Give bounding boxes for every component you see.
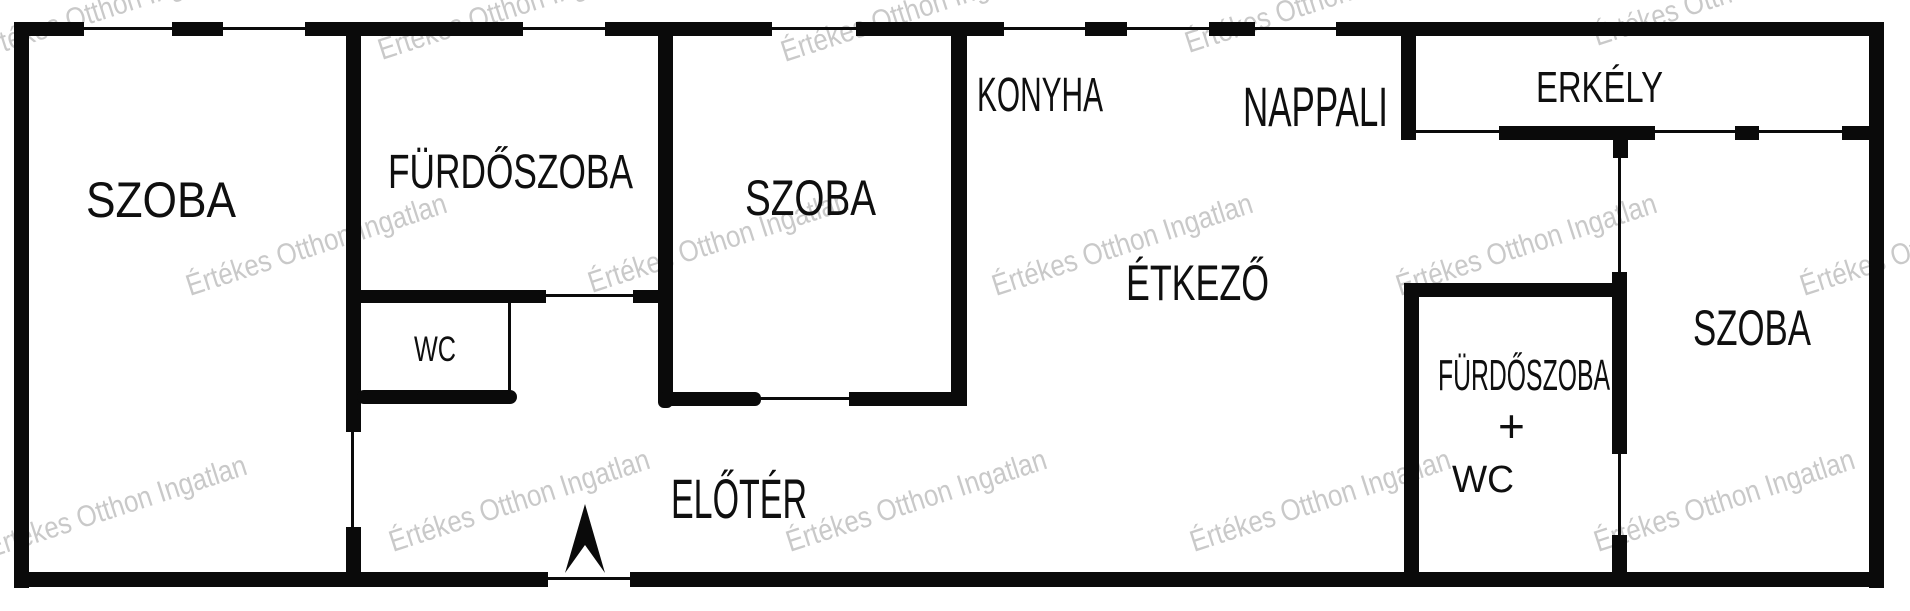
- svg-text:SZOBA: SZOBA: [86, 172, 237, 228]
- svg-text:WC: WC: [1452, 459, 1514, 501]
- svg-text:Értékes Otthon Ingatlan: Értékes Otthon Ingatlan: [385, 443, 654, 558]
- svg-text:ÉTKEZŐ: ÉTKEZŐ: [1126, 255, 1269, 311]
- svg-text:Értékes Otthon Ingatlan: Értékes Otthon Ingatlan: [782, 443, 1051, 558]
- svg-text:SZOBA: SZOBA: [745, 170, 877, 226]
- svg-text:FÜRDŐSZOBA: FÜRDŐSZOBA: [1438, 351, 1610, 400]
- svg-text:FÜRDŐSZOBA: FÜRDŐSZOBA: [388, 146, 633, 199]
- svg-text:SZOBA: SZOBA: [1693, 300, 1811, 356]
- svg-text:ERKÉLY: ERKÉLY: [1536, 63, 1663, 112]
- svg-text:WC: WC: [414, 330, 456, 369]
- svg-text:Értékes Otthon Ingatlan: Értékes Otthon Ingatlan: [0, 449, 251, 564]
- svg-text:ELŐTÉR: ELŐTÉR: [671, 467, 807, 530]
- svg-text:+: +: [1498, 400, 1525, 452]
- svg-text:NAPPALI: NAPPALI: [1243, 75, 1388, 138]
- svg-text:KONYHA: KONYHA: [977, 69, 1103, 122]
- svg-text:Értékes Otthon Ingatlan: Értékes Otthon Ingatlan: [1590, 443, 1859, 558]
- svg-text:Értékes Otthon Ingatlan: Értékes Otthon Ingatlan: [1796, 187, 1910, 302]
